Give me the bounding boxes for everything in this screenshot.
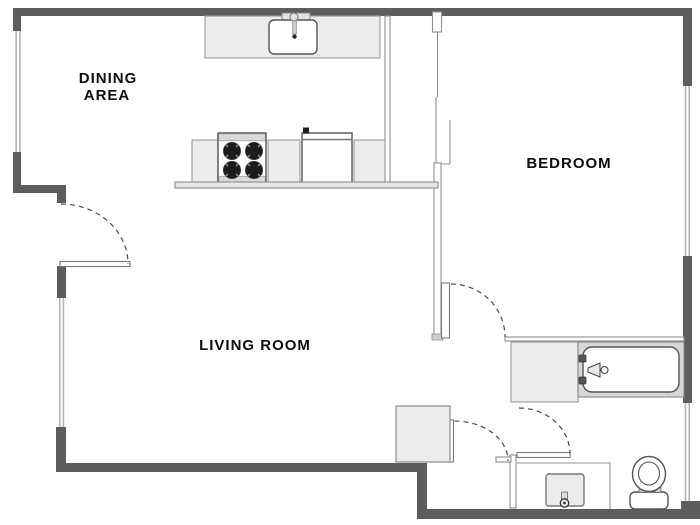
kitchen-wall	[385, 16, 390, 183]
dishwasher-icon	[302, 128, 352, 184]
entry-door-arc	[61, 204, 128, 264]
wall-step	[417, 470, 427, 511]
wall-corner-br	[681, 501, 700, 519]
entry-door-leaf	[60, 262, 130, 267]
bedroom-opening-lines	[436, 32, 450, 164]
wall-left-top	[13, 8, 21, 31]
bedroom-wall-pilaster	[433, 12, 442, 32]
toilet-room-stub	[496, 457, 511, 462]
entry-jamb-bottom	[57, 266, 66, 298]
kitchen	[175, 13, 438, 188]
living-room-label: LIVING ROOM	[199, 337, 311, 354]
wall-jog	[13, 185, 66, 193]
dishwasher-body	[302, 133, 352, 183]
toilet-room-wall	[510, 455, 516, 508]
bathroom	[511, 342, 684, 402]
doors	[60, 204, 570, 462]
floor-plan: DINING AREA BEDROOM LIVING ROOM	[0, 0, 700, 525]
toilet-tank	[630, 492, 668, 509]
entry-jamb-top	[57, 193, 66, 203]
bathroom-vanity	[511, 342, 578, 402]
bedroom-door-arc	[451, 284, 505, 337]
dishwasher-knob	[303, 128, 309, 134]
closet	[396, 406, 450, 462]
toilet-room-door-leaf	[517, 453, 570, 458]
bedroom-label: BEDROOM	[526, 155, 611, 172]
toilet-icon	[630, 457, 668, 510]
toilet-room	[546, 457, 668, 510]
kitchen-counter-right	[354, 140, 385, 183]
wall-bottom-right	[417, 509, 700, 519]
bedroom-wall	[434, 163, 441, 338]
hall-door-arc	[455, 421, 509, 461]
kitchen-counter-left	[192, 140, 218, 183]
wall-bottom-left	[56, 463, 427, 472]
window-right-upper	[686, 86, 690, 256]
stove-icon	[218, 133, 266, 183]
dining-area-label-line1: DINING	[79, 70, 138, 87]
sink-faucet-base	[290, 13, 298, 21]
sink-faucet-stem	[293, 21, 297, 34]
stove-top-band	[219, 134, 265, 141]
bathroom-sink-icon	[546, 474, 584, 507]
wall-left-mid	[13, 152, 21, 186]
kitchen-counter-mid	[268, 140, 300, 183]
bedroom-door-leaf	[442, 283, 450, 338]
dining-area-label-line2: AREA	[84, 87, 131, 104]
window-left-lower	[60, 298, 64, 427]
bathroom-top-wall	[505, 337, 684, 341]
toilet-room-door-arc	[519, 408, 570, 454]
window-right-lower	[686, 403, 690, 501]
sink-faucet-tip	[292, 34, 296, 38]
breakfast-bar	[175, 182, 438, 188]
wall-right-upper	[683, 8, 692, 86]
wall-top	[14, 8, 684, 16]
window-left-upper	[16, 31, 20, 152]
